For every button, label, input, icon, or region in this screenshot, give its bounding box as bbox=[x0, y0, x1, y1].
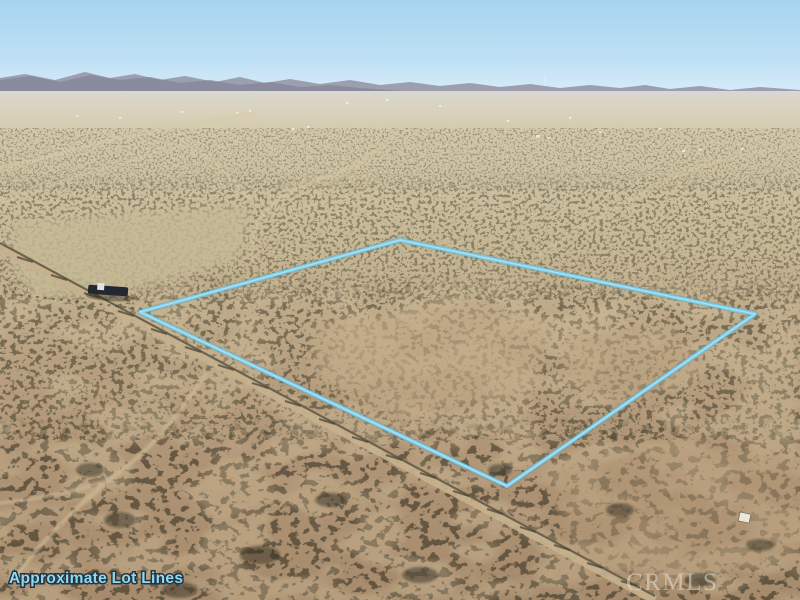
aerial-photo-canvas: Approximate Lot Lines CRMLS bbox=[0, 0, 800, 600]
crmls-watermark: CRMLS bbox=[626, 569, 718, 596]
approximate-lot-lines-label: Approximate Lot Lines bbox=[9, 570, 183, 587]
listing-photo: Approximate Lot Lines CRMLS bbox=[0, 0, 800, 600]
small-shed bbox=[738, 512, 751, 523]
